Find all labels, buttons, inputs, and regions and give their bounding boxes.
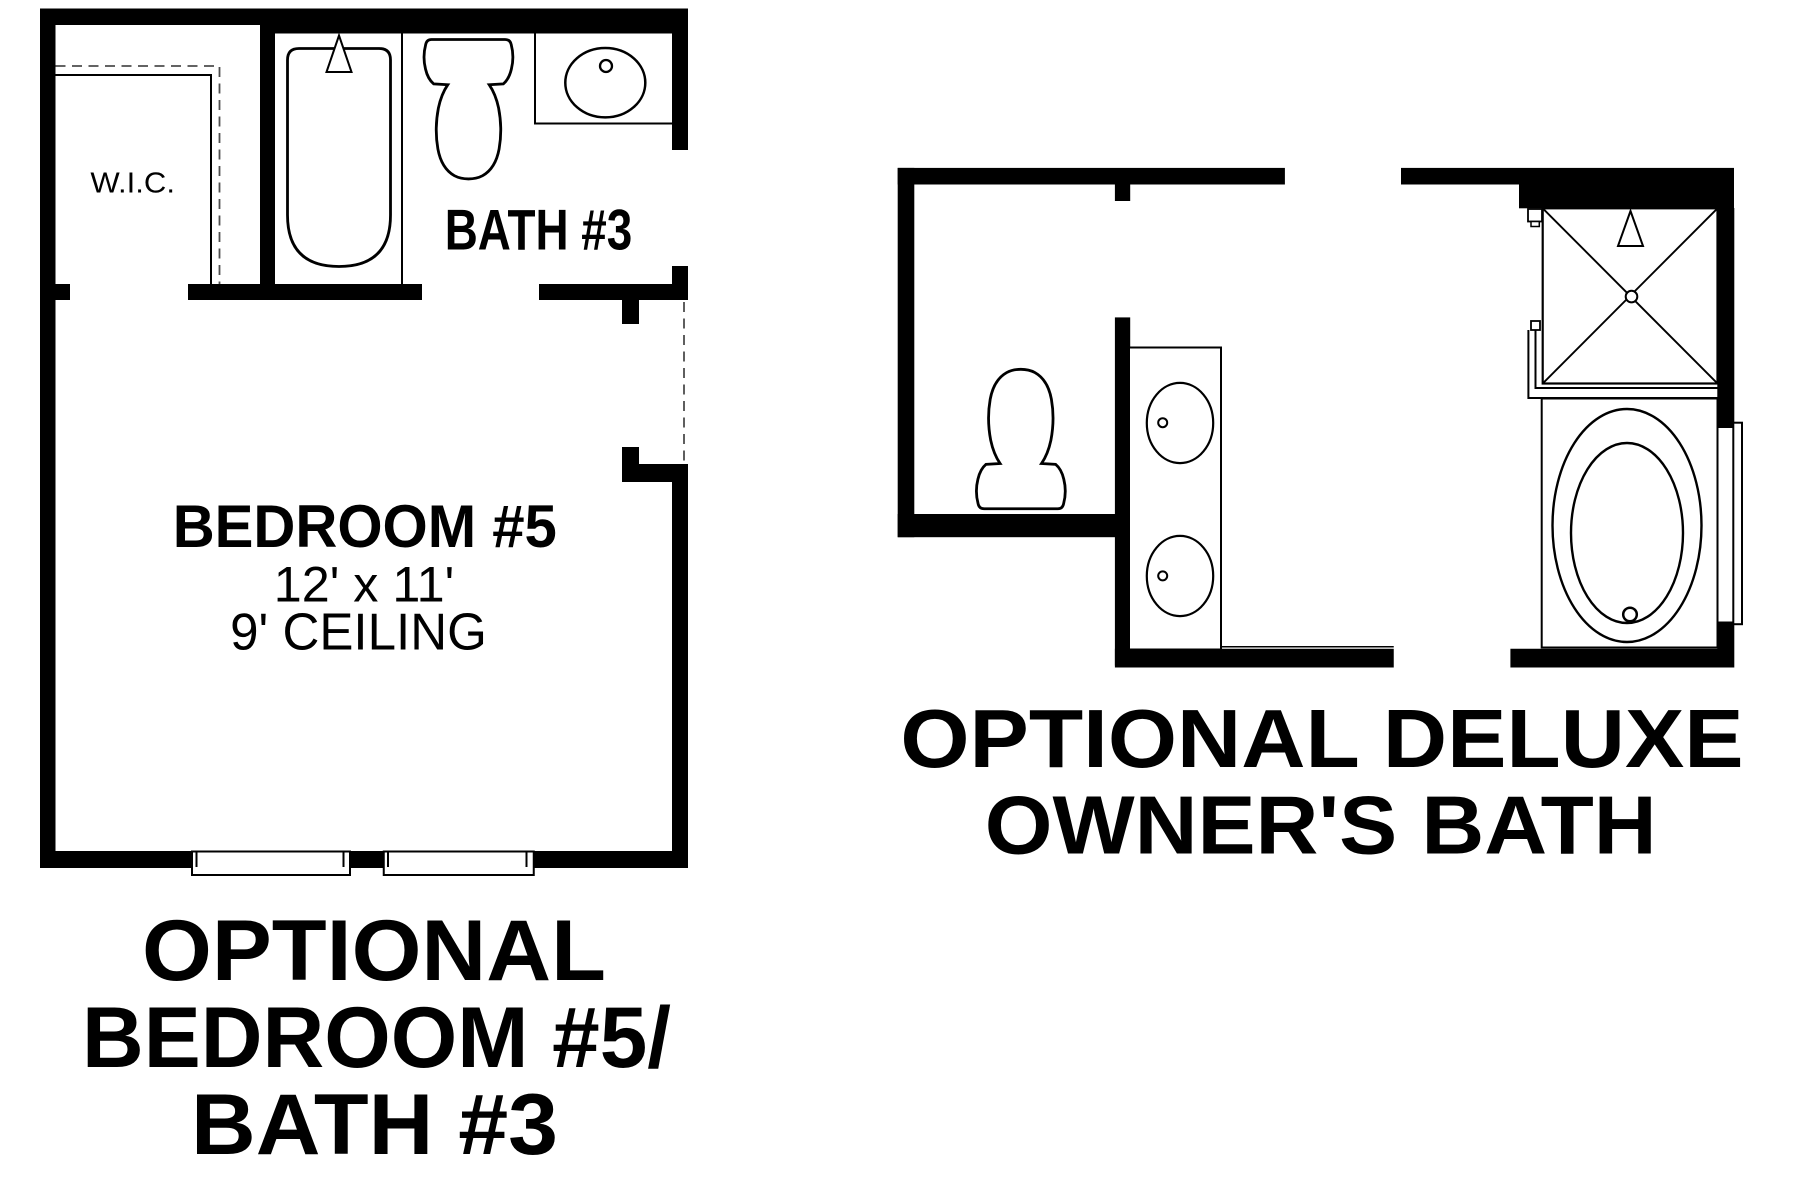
svg-text:BATH #3: BATH #3 (445, 199, 633, 263)
svg-text:W.I.C.: W.I.C. (90, 167, 175, 199)
svg-text:OPTIONAL DELUXE: OPTIONAL DELUXE (900, 693, 1743, 785)
svg-text:OWNER'S BATH: OWNER'S BATH (985, 780, 1657, 872)
svg-text:BEDROOM #5: BEDROOM #5 (173, 492, 557, 560)
svg-text:OPTIONAL: OPTIONAL (142, 903, 606, 999)
svg-text:9' CEILING: 9' CEILING (230, 604, 487, 662)
svg-text:BATH #3: BATH #3 (191, 1077, 558, 1173)
svg-text:BEDROOM #5/: BEDROOM #5/ (82, 990, 671, 1086)
